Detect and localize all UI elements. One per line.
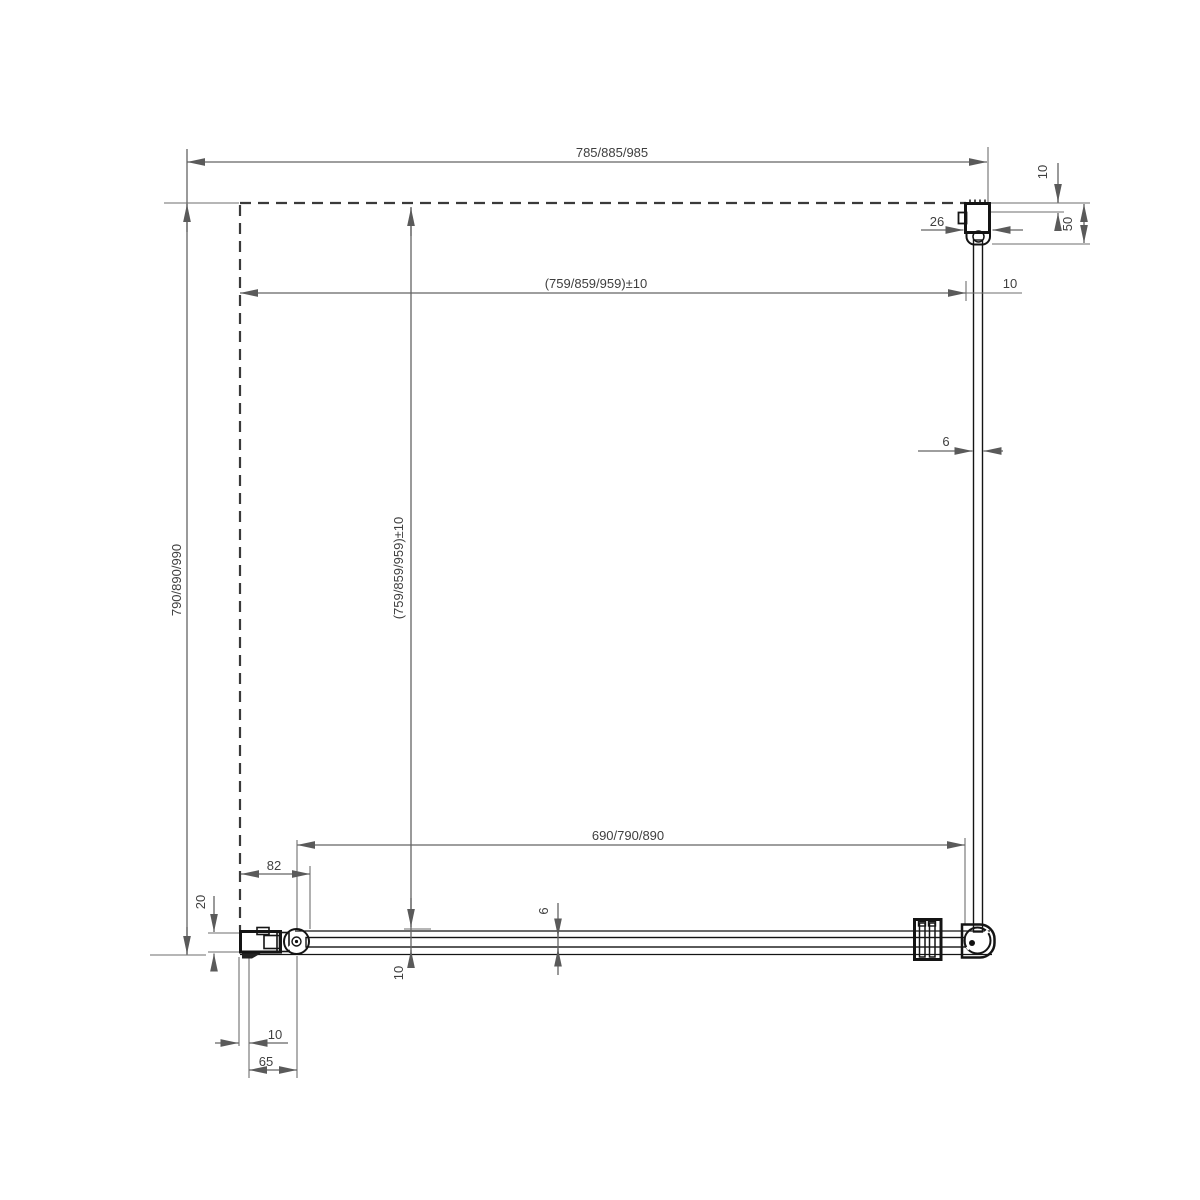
dim-overall-width-label: 785/885/985 <box>576 145 648 160</box>
dim-profile-plan-depth-label: 20 <box>193 895 208 909</box>
open-side-dashed-lines <box>240 203 966 930</box>
dim-overall-depth-label: 790/890/990 <box>169 544 184 616</box>
support-clamp-slot <box>930 923 936 957</box>
dim-hinge-offset-label: 82 <box>267 858 281 873</box>
dim-side-glass-thickness-label: 6 <box>942 434 949 449</box>
dim-profile-adjust-top-label: 10 <box>1035 165 1050 179</box>
dim-profile-adjust-bottom-label: 10 <box>268 1027 282 1042</box>
dim-glass-inset-front-label: 10 <box>391 966 406 980</box>
dim-inner-depth-label: (759/859/959)±10 <box>391 517 406 620</box>
support-clamp-slot <box>920 923 926 957</box>
side-glass-panel <box>974 240 983 932</box>
dim-profile-width-top-label: 26 <box>930 214 944 229</box>
dim-front-glass-thickness-label: 6 <box>536 907 551 914</box>
front-glass-panel <box>306 938 965 948</box>
wall-profile-top <box>959 200 991 245</box>
corner-connector-slot <box>967 931 988 949</box>
glass-panels <box>240 240 992 955</box>
corner-connector <box>962 925 995 958</box>
drawing-page: 785/885/985 (759/859/959)±10 790/890/990… <box>0 0 1200 1200</box>
dim-profile-depth-top-label: 50 <box>1060 217 1075 231</box>
dim-glass-inset-side-label: 10 <box>1003 276 1017 291</box>
dim-front-glass-width-label: 690/790/890 <box>592 828 664 843</box>
support-clamp-bottom-right <box>915 920 942 960</box>
dim-profile-width-bottom-label: 65 <box>259 1054 273 1069</box>
corner-connector-screw <box>969 940 975 946</box>
wall-profile-body <box>966 204 990 233</box>
hinge-center-dot <box>295 940 298 943</box>
dim-inner-width-label: (759/859/959)±10 <box>545 276 648 291</box>
shower-enclosure-plan-drawing: 785/885/985 (759/859/959)±10 790/890/990… <box>0 0 1200 1200</box>
